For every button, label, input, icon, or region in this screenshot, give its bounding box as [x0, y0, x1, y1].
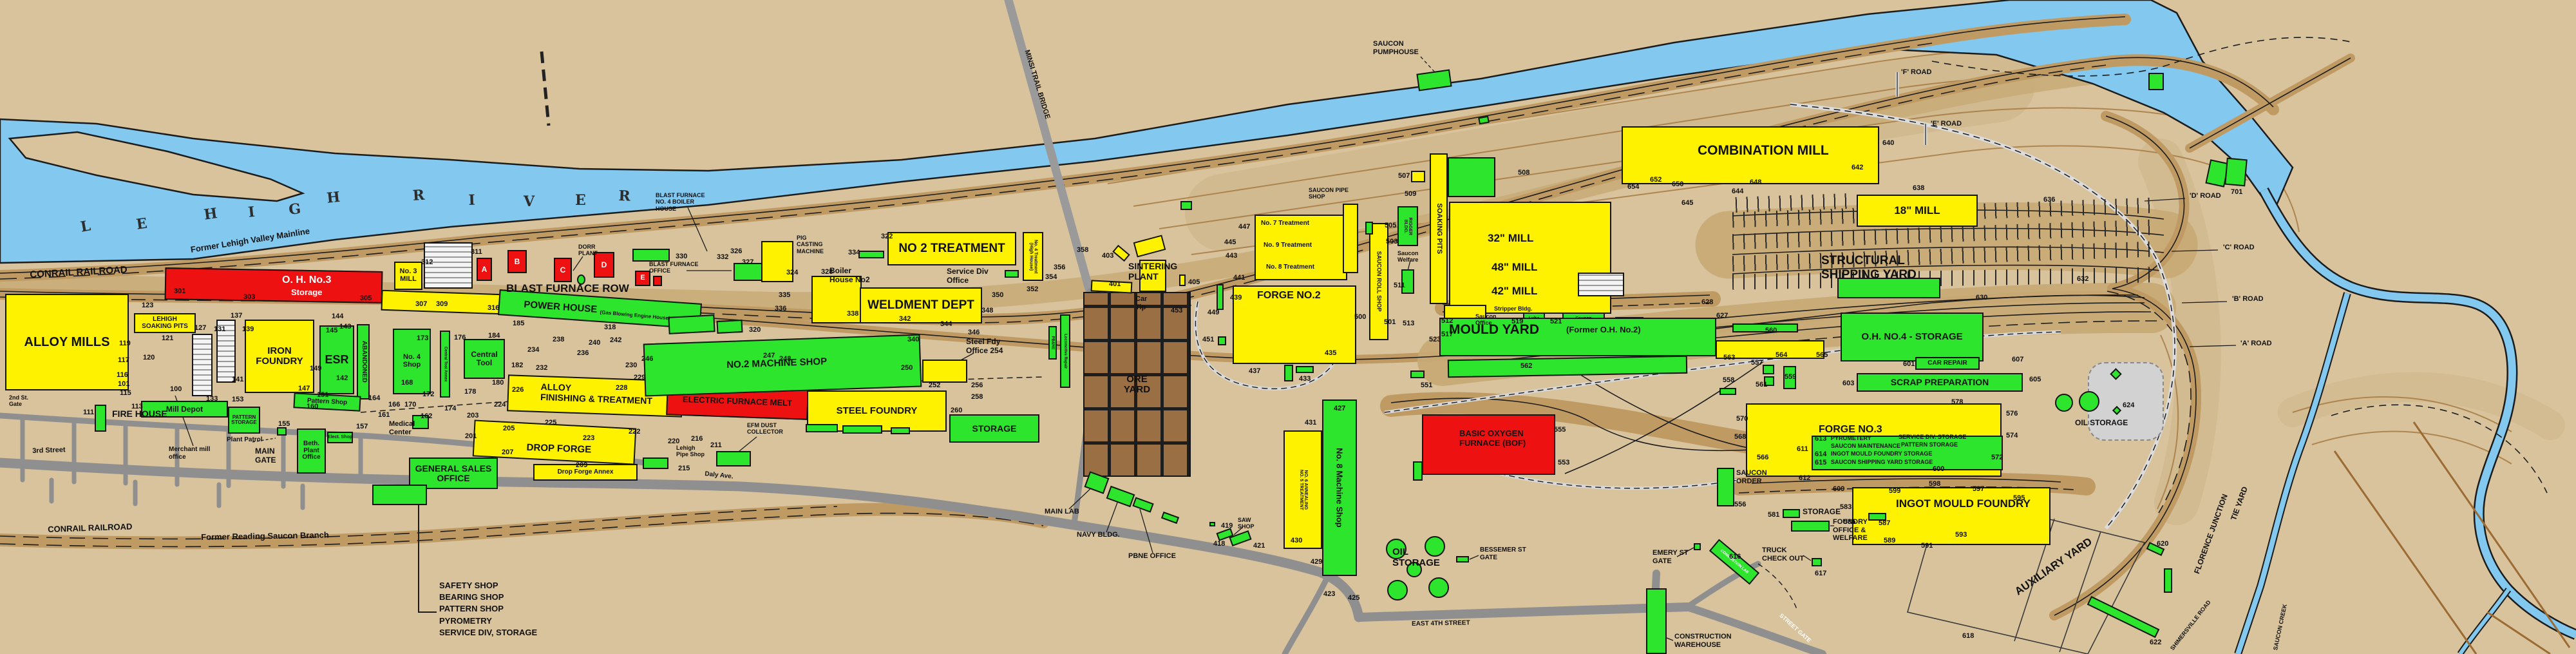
river-letter: L	[79, 217, 92, 235]
plant-map: ALLOY MILLSLEHIGH SOAKING PITSNo. 3 MILL…	[0, 0, 2576, 654]
river-letter: R	[618, 188, 630, 205]
river-letter: E	[575, 192, 586, 209]
river-letter: I	[468, 192, 475, 209]
river-letter: I	[247, 204, 256, 221]
river-letter: G	[288, 200, 301, 218]
river-letter: V	[524, 193, 535, 210]
river-letter: E	[135, 215, 148, 233]
river-letter: H	[203, 205, 218, 224]
river-letter: R	[412, 187, 425, 204]
river-letter: H	[326, 189, 341, 207]
river-name-layer: LEHIGHRIVER	[0, 0, 2576, 654]
